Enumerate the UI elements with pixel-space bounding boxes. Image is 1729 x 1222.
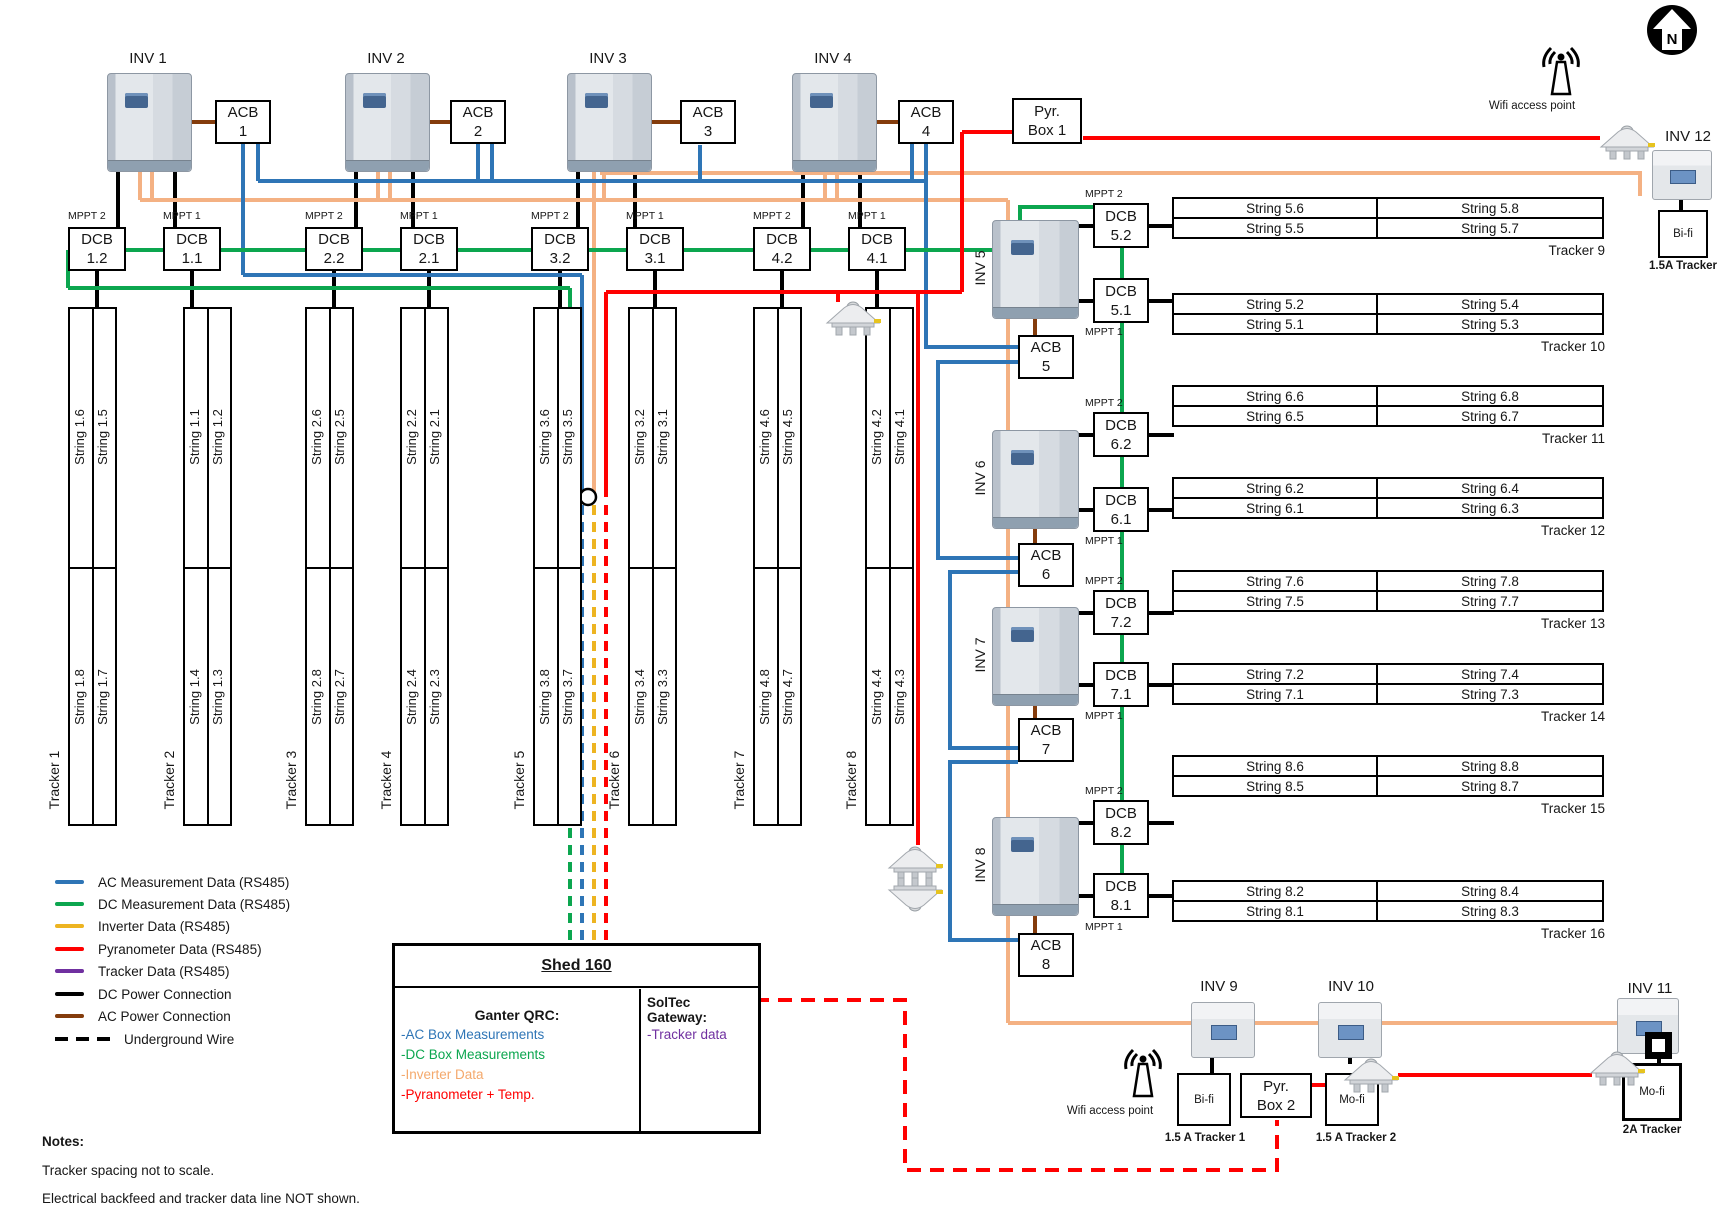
- acb-box-2: ACB2: [450, 100, 506, 144]
- dcb-box-4.1-line2: 4.1: [867, 249, 888, 268]
- string-table-tracker-10: String 5.2String 5.4String 5.1String 5.3: [1172, 293, 1604, 335]
- acb-box-1-line1: ACB: [228, 103, 259, 122]
- acb-box-4-line1: ACB: [911, 103, 942, 122]
- acb-box-4: ACB4: [898, 100, 954, 144]
- string-cell: String 5.3: [1378, 315, 1602, 333]
- string-cell: String 8.1: [1174, 902, 1376, 920]
- string-label: String 4.4: [869, 617, 887, 777]
- string-label: String 1.3: [210, 617, 228, 777]
- legend-item-5: Tracker Data (RS485): [55, 962, 230, 980]
- string-cell: String 6.1: [1174, 499, 1376, 517]
- acb-box-1: ACB1: [215, 100, 271, 144]
- string-label: String 4.1: [892, 357, 910, 517]
- dcb-box-2.2-line2: 2.2: [324, 249, 345, 268]
- string-label: String 1.4: [187, 617, 205, 777]
- legend-label: AC Measurement Data (RS485): [98, 875, 289, 890]
- string-cell: String 5.7: [1378, 219, 1602, 237]
- mppt-label-5.2: MPPT 2: [1085, 188, 1123, 200]
- notes-block: Notes: Tracker spacing not to scale. Ele…: [42, 1134, 360, 1219]
- dcb-box-1.1-line2: 1.1: [182, 249, 203, 268]
- string-cell: String 5.2: [1174, 295, 1376, 313]
- ganter-item-2: -DC Box Measurements: [401, 1045, 633, 1065]
- tracker-label-8: Tracker 8: [843, 700, 861, 860]
- legend-swatch: [55, 969, 84, 974]
- tracker-label-4: Tracker 4: [378, 700, 396, 860]
- tracker-label-7: Tracker 7: [731, 700, 749, 860]
- string-label: String 1.7: [95, 617, 113, 777]
- dcb-box-1.2-line1: DCB: [81, 230, 113, 249]
- string-label: String 2.1: [427, 357, 445, 517]
- inverter-image-8: [992, 817, 1079, 916]
- string-cell: String 8.2: [1174, 882, 1376, 900]
- mppt-label-top-5: MPPT 2: [531, 210, 569, 222]
- dcb-box-7.1-line1: DCB: [1105, 666, 1137, 685]
- acb-box-3: ACB3: [680, 100, 736, 144]
- dcb-box-5.1-line1: DCB: [1105, 282, 1137, 301]
- dcb-box-7.1-line2: 7.1: [1111, 685, 1132, 704]
- bifi-sub-bottom: 1.5 A Tracker 1: [1165, 1132, 1245, 1144]
- pyranometer-box-1: Pyr.Box 1: [1012, 98, 1082, 144]
- wifi-access-point-label-bottom: Wifi access point: [1067, 1105, 1153, 1117]
- string-cell: String 5.6: [1174, 199, 1376, 217]
- acb-box-8-line2: 8: [1042, 955, 1050, 974]
- inverter-label-4: INV 4: [814, 50, 852, 67]
- dcb-box-6.2-line2: 6.2: [1111, 435, 1132, 454]
- dcb-box-5.2: DCB5.2: [1093, 203, 1149, 248]
- mppt-label-top-2: MPPT 1: [163, 210, 201, 222]
- ganter-item-1: -AC Box Measurements: [401, 1025, 633, 1045]
- inverter-image-3: [567, 73, 652, 172]
- shed-title: Shed 160: [395, 946, 758, 988]
- mppt-label-top-8: MPPT 1: [848, 210, 886, 222]
- string-label: String 1.5: [95, 357, 113, 517]
- dcb-box-8.1-line1: DCB: [1105, 877, 1137, 896]
- legend-label: Inverter Data (RS485): [98, 919, 230, 934]
- acb-box-7: ACB7: [1018, 718, 1074, 762]
- dcb-box-8.2: DCB8.2: [1093, 800, 1149, 845]
- dcb-box-4.2-line2: 4.2: [772, 249, 793, 268]
- soltec-gateway-title: SolTec Gateway:: [647, 995, 752, 1025]
- dcb-box-6.2-line1: DCB: [1105, 416, 1137, 435]
- inverter-image-7: [992, 607, 1079, 706]
- inverter-label-6: INV 6: [972, 398, 990, 558]
- dcb-box-8.2-line1: DCB: [1105, 804, 1137, 823]
- acb-box-6-line1: ACB: [1031, 546, 1062, 565]
- tracker-label-6: Tracker 6: [606, 700, 624, 860]
- string-cell: String 7.6: [1174, 572, 1376, 590]
- dcb-box-1.1: DCB1.1: [163, 227, 221, 271]
- dcb-box-4.2-line1: DCB: [766, 230, 798, 249]
- pyranometer-icon-c: [1588, 1048, 1646, 1088]
- acb-box-7-line2: 7: [1042, 740, 1050, 759]
- legend-item-8: Underground Wire: [55, 1030, 234, 1048]
- pyranometer-box-1-line1: Pyr.: [1034, 102, 1060, 121]
- inverter-label-2: INV 2: [367, 50, 405, 67]
- dcb-box-5.1: DCB5.1: [1093, 278, 1149, 323]
- legend-swatch: [55, 924, 84, 929]
- string-label: String 1.8: [72, 617, 90, 777]
- legend-label: Tracker Data (RS485): [98, 964, 230, 979]
- inverter-label-10: INV 10: [1328, 978, 1374, 995]
- inverter-label-7: INV 7: [972, 575, 990, 735]
- tracker-label-14: Tracker 14: [1455, 709, 1605, 724]
- mppt-label-8.2: MPPT 2: [1085, 785, 1123, 797]
- mofi-sub-2: 2A Tracker: [1623, 1124, 1681, 1136]
- bifi-sub-top: 1.5A Tracker: [1649, 260, 1717, 272]
- pyranometer-icon-d: [824, 298, 882, 338]
- tracker-label-1: Tracker 1: [46, 700, 64, 860]
- wifi-access-point-icon-bottom: [1120, 1046, 1166, 1100]
- string-label: String 4.5: [780, 357, 798, 517]
- string-cell: String 6.2: [1174, 479, 1376, 497]
- legend-item-6: DC Power Connection: [55, 985, 232, 1003]
- dcb-box-4.1-line1: DCB: [861, 230, 893, 249]
- mppt-label-top-4: MPPT 1: [400, 210, 438, 222]
- string-cell: String 8.8: [1378, 757, 1602, 775]
- notes-line-1: Tracker spacing not to scale.: [42, 1163, 360, 1178]
- string-label: String 2.5: [332, 357, 350, 517]
- string-cell: String 8.5: [1174, 777, 1376, 795]
- string-cell: String 7.1: [1174, 685, 1376, 703]
- string-label: String 3.3: [655, 617, 673, 777]
- legend-swatch: [55, 880, 84, 885]
- string-cell: String 6.5: [1174, 407, 1376, 425]
- dcb-box-6.1-line2: 6.1: [1111, 510, 1132, 529]
- svg-text:N: N: [1667, 31, 1678, 48]
- dcb-box-2.1-line2: 2.1: [419, 249, 440, 268]
- acb-box-5-line2: 5: [1042, 357, 1050, 376]
- dcb-box-8.1-line2: 8.1: [1111, 896, 1132, 915]
- inverter-image-12: [1652, 150, 1712, 200]
- string-cell: String 8.3: [1378, 902, 1602, 920]
- mppt-label-top-7: MPPT 2: [753, 210, 791, 222]
- string-cell: String 5.1: [1174, 315, 1376, 333]
- tracker-label-5: Tracker 5: [511, 700, 529, 860]
- tracker-label-2: Tracker 2: [161, 700, 179, 860]
- tracker-label-13: Tracker 13: [1455, 616, 1605, 631]
- mppt-label-top-6: MPPT 1: [626, 210, 664, 222]
- string-cell: String 6.3: [1378, 499, 1602, 517]
- string-label: String 4.7: [780, 617, 798, 777]
- string-table-tracker-15: String 8.6String 8.8String 8.5String 8.7: [1172, 755, 1604, 797]
- string-cell: String 5.8: [1378, 199, 1602, 217]
- ganter-qrc-title: Ganter QRC:: [401, 1007, 633, 1023]
- dcb-box-3.2-line2: 3.2: [550, 249, 571, 268]
- dcb-box-8.2-line2: 8.2: [1111, 823, 1132, 842]
- inverter-image-10: [1318, 1002, 1382, 1058]
- mppt-label-top-1: MPPT 2: [68, 210, 106, 222]
- ganter-item-4: -Pyranometer + Temp.: [401, 1085, 633, 1105]
- wifi-access-point-label-top: Wifi access point: [1489, 100, 1575, 112]
- dcb-box-2.2-line1: DCB: [318, 230, 350, 249]
- dcb-box-4.1: DCB4.1: [848, 227, 906, 271]
- dcb-box-7.2: DCB7.2: [1093, 590, 1149, 635]
- pyranometer-icon-f: [886, 875, 944, 915]
- acb-box-5: ACB5: [1018, 335, 1074, 379]
- dcb-box-1.2: DCB1.2: [68, 227, 126, 271]
- mppt-label-6.1: MPPT 1: [1085, 535, 1123, 547]
- string-cell: String 5.4: [1378, 295, 1602, 313]
- string-label: String 3.7: [560, 617, 578, 777]
- mppt-label-top-3: MPPT 2: [305, 210, 343, 222]
- inverter-label-3: INV 3: [589, 50, 627, 67]
- string-label: String 4.3: [892, 617, 910, 777]
- ganter-item-3: -Inverter Data: [401, 1065, 633, 1085]
- tracker-label-3: Tracker 3: [283, 700, 301, 860]
- dcb-box-2.1: DCB2.1: [400, 227, 458, 271]
- wiring-diagram: Shed 160 Ganter QRC: -AC Box Measurement…: [0, 0, 1729, 1222]
- inverter-image-5: [992, 220, 1079, 319]
- inverter-image-2: [345, 73, 430, 172]
- legend-swatch: [55, 1014, 84, 1019]
- string-label: String 2.8: [309, 617, 327, 777]
- string-table-tracker-11: String 6.6String 6.8String 6.5String 6.7: [1172, 385, 1604, 427]
- acb-box-4-line2: 4: [922, 122, 930, 141]
- tracker-label-11: Tracker 11: [1455, 431, 1605, 446]
- tracker-label-15: Tracker 15: [1455, 801, 1605, 816]
- tracker-label-12: Tracker 12: [1455, 523, 1605, 538]
- mofi-sub-1: 1.5 A Tracker 2: [1316, 1132, 1396, 1144]
- acb-box-8: ACB8: [1018, 933, 1074, 977]
- string-cell: String 6.7: [1378, 407, 1602, 425]
- acb-box-7-line1: ACB: [1031, 721, 1062, 740]
- acb-box-6: ACB6: [1018, 543, 1074, 587]
- tracker-label-10: Tracker 10: [1455, 339, 1605, 354]
- legend-swatch: [55, 992, 84, 997]
- dcb-box-7.1: DCB7.1: [1093, 662, 1149, 707]
- string-label: String 3.8: [537, 617, 555, 777]
- dcb-box-4.2: DCB4.2: [753, 227, 811, 271]
- pyranometer-icon-b: [1342, 1055, 1400, 1095]
- dcb-box-3.2: DCB3.2: [531, 227, 589, 271]
- dcb-box-6.1: DCB6.1: [1093, 487, 1149, 532]
- dcb-box-3.1: DCB3.1: [626, 227, 684, 271]
- legend-swatch: [55, 902, 84, 907]
- inverter-image-4: [792, 73, 877, 172]
- dcb-box-3.1-line2: 3.1: [645, 249, 666, 268]
- dcb-box-6.2: DCB6.2: [1093, 412, 1149, 457]
- pyranometer-box-2-line2: Box 2: [1257, 1096, 1295, 1115]
- legend-label: DC Power Connection: [98, 987, 232, 1002]
- string-cell: String 7.7: [1378, 592, 1602, 610]
- dcb-box-5.1-line2: 5.1: [1111, 301, 1132, 320]
- string-table-tracker-9: String 5.6String 5.8String 5.5String 5.7: [1172, 197, 1604, 239]
- string-cell: String 7.3: [1378, 685, 1602, 703]
- string-label: String 3.4: [632, 617, 650, 777]
- string-cell: String 6.4: [1378, 479, 1602, 497]
- pyranometer-box-2-line1: Pyr.: [1263, 1077, 1289, 1096]
- legend-label: Pyranometer Data (RS485): [98, 942, 262, 957]
- mppt-label-5.1: MPPT 1: [1085, 326, 1123, 338]
- legend-swatch-dashed: [55, 1037, 110, 1042]
- string-label: String 2.6: [309, 357, 327, 517]
- acb-box-5-line1: ACB: [1031, 338, 1062, 357]
- string-cell: String 8.7: [1378, 777, 1602, 795]
- legend-item-1: AC Measurement Data (RS485): [55, 873, 289, 891]
- notes-title: Notes:: [42, 1134, 360, 1149]
- legend-item-3: Inverter Data (RS485): [55, 917, 230, 935]
- legend-label: DC Measurement Data (RS485): [98, 897, 290, 912]
- pyranometer-box-2: Pyr.Box 2: [1240, 1073, 1312, 1118]
- string-cell: String 7.5: [1174, 592, 1376, 610]
- string-label: String 2.3: [427, 617, 445, 777]
- string-cell: String 5.5: [1174, 219, 1376, 237]
- string-table-tracker-13: String 7.6String 7.8String 7.5String 7.7: [1172, 570, 1604, 612]
- shed-ganter-section: Ganter QRC: -AC Box Measurements-DC Box …: [395, 989, 641, 1132]
- legend-swatch: [55, 947, 84, 952]
- dcb-box-1.2-line2: 1.2: [87, 249, 108, 268]
- tracker-label-9: Tracker 9: [1455, 243, 1605, 258]
- dcb-box-6.1-line1: DCB: [1105, 491, 1137, 510]
- wifi-access-point-icon-top: [1538, 44, 1584, 98]
- pyranometer-box-1-line2: Box 1: [1028, 121, 1066, 140]
- dcb-box-1.1-line1: DCB: [176, 230, 208, 249]
- soltec-item-1: -Tracker data: [647, 1025, 752, 1045]
- dcb-box-3.1-line1: DCB: [639, 230, 671, 249]
- string-cell: String 8.4: [1378, 882, 1602, 900]
- string-label: String 3.6: [537, 357, 555, 517]
- legend-label: AC Power Connection: [98, 1009, 231, 1024]
- mppt-label-7.2: MPPT 2: [1085, 575, 1123, 587]
- string-label: String 2.4: [404, 617, 422, 777]
- string-label: String 3.2: [632, 357, 650, 517]
- dcb-box-8.1: DCB8.1: [1093, 873, 1149, 918]
- acb-box-2-line2: 2: [474, 122, 482, 141]
- tracker-label-16: Tracker 16: [1455, 926, 1605, 941]
- inverter-label-11: INV 11: [1628, 980, 1673, 997]
- string-label: String 1.2: [210, 357, 228, 517]
- dcb-box-2.1-line1: DCB: [413, 230, 445, 249]
- shed-soltec-section: SolTec Gateway: -Tracker data: [641, 989, 758, 1132]
- string-table-tracker-14: String 7.2String 7.4String 7.1String 7.3: [1172, 663, 1604, 705]
- inverter-label-9: INV 9: [1200, 978, 1238, 995]
- mppt-label-6.2: MPPT 2: [1085, 397, 1123, 409]
- acb-box-2-line1: ACB: [463, 103, 494, 122]
- string-label: String 2.2: [404, 357, 422, 517]
- dcb-box-2.2: DCB2.2: [305, 227, 363, 271]
- legend-label: Underground Wire: [124, 1032, 234, 1047]
- string-cell: String 7.8: [1378, 572, 1602, 590]
- string-cell: String 6.8: [1378, 387, 1602, 405]
- legend-item-4: Pyranometer Data (RS485): [55, 940, 262, 958]
- acb-box-6-line2: 6: [1042, 565, 1050, 584]
- dcb-box-3.2-line1: DCB: [544, 230, 576, 249]
- mppt-label-7.1: MPPT 1: [1085, 710, 1123, 722]
- string-label: String 3.5: [560, 357, 578, 517]
- acb-box-8-line1: ACB: [1031, 936, 1062, 955]
- string-label: String 4.8: [757, 617, 775, 777]
- inverter-image-9: [1191, 1002, 1255, 1058]
- string-cell: String 6.6: [1174, 387, 1376, 405]
- legend-item-7: AC Power Connection: [55, 1007, 231, 1025]
- north-compass-icon: N: [1646, 4, 1698, 56]
- inverter-image-6: [992, 430, 1079, 529]
- string-label: String 1.6: [72, 357, 90, 517]
- notes-line-2: Electrical backfeed and tracker data lin…: [42, 1191, 360, 1206]
- acb-box-3-line1: ACB: [693, 103, 724, 122]
- shed-box: Shed 160 Ganter QRC: -AC Box Measurement…: [392, 943, 761, 1134]
- inv11-connector-square: [1645, 1032, 1672, 1059]
- string-cell: String 8.6: [1174, 757, 1376, 775]
- string-cell: String 7.2: [1174, 665, 1376, 683]
- inverter-label-1: INV 1: [129, 50, 167, 67]
- dcb-box-5.2-line2: 5.2: [1111, 226, 1132, 245]
- inverter-image-1: [107, 73, 192, 172]
- string-table-tracker-16: String 8.2String 8.4String 8.1String 8.3: [1172, 880, 1604, 922]
- bifi-box-bottom: Bi-fi: [1177, 1073, 1231, 1126]
- string-label: String 1.1: [187, 357, 205, 517]
- acb-box-3-line2: 3: [704, 122, 712, 141]
- string-label: String 4.6: [757, 357, 775, 517]
- string-table-tracker-12: String 6.2String 6.4String 6.1String 6.3: [1172, 477, 1604, 519]
- inverter-label-5: INV 5: [972, 188, 990, 348]
- string-label: String 2.7: [332, 617, 350, 777]
- dcb-box-7.2-line2: 7.2: [1111, 613, 1132, 632]
- mppt-label-8.1: MPPT 1: [1085, 921, 1123, 933]
- legend-item-2: DC Measurement Data (RS485): [55, 895, 290, 913]
- pyranometer-icon-a: [1598, 122, 1656, 162]
- string-label: String 4.2: [869, 357, 887, 517]
- string-cell: String 7.4: [1378, 665, 1602, 683]
- dcb-box-7.2-line1: DCB: [1105, 594, 1137, 613]
- inverter-label-12: INV 12: [1665, 128, 1711, 145]
- dcb-box-5.2-line1: DCB: [1105, 207, 1137, 226]
- string-label: String 3.1: [655, 357, 673, 517]
- bifi-box-top: Bi-fi: [1658, 210, 1708, 258]
- acb-box-1-line2: 1: [239, 122, 247, 141]
- inverter-label-8: INV 8: [972, 785, 990, 945]
